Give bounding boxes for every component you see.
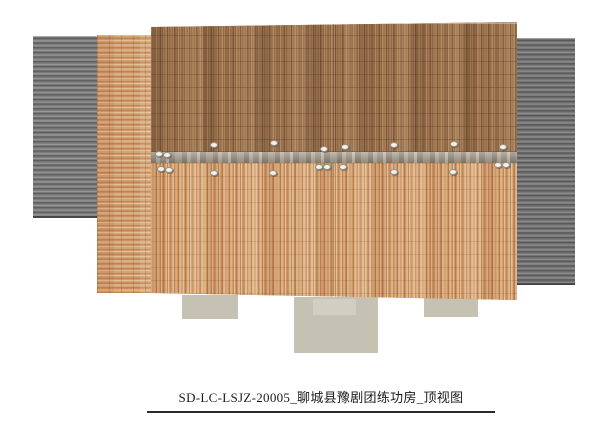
ridge-clip-dot (502, 162, 510, 168)
right-corrugated-roof (513, 38, 575, 285)
ridge-clip-dot (163, 152, 171, 158)
slab-center-inner (313, 299, 356, 315)
ridge-clip-dot (210, 142, 218, 148)
slab-left (182, 295, 238, 319)
drawing-sheet: SD-LC-LSJZ-20005_聊城县豫剧团练功房_顶视图 (0, 0, 608, 435)
ridge-clip-dot (323, 164, 331, 170)
ridge-clip-dot (390, 169, 398, 175)
ridge-clip-dot (341, 144, 349, 150)
ridge-clip-dot (315, 164, 323, 170)
ridge-clip-dot (390, 142, 398, 148)
ridge-clip-dot (157, 166, 165, 172)
ridge-clip-dot (270, 140, 278, 146)
ridge-clip-dot (269, 170, 277, 176)
main-roof-upper-slope (151, 22, 517, 152)
left-tile-roof-strip (97, 35, 151, 293)
roof-ridge-flashing (151, 152, 517, 163)
drawing-caption: SD-LC-LSJZ-20005_聊城县豫剧团练功房_顶视图 (147, 390, 495, 413)
ridge-clip-dot (499, 144, 507, 150)
ridge-clip-dot (210, 170, 218, 176)
roof-panel-seam (333, 163, 334, 296)
ridge-clip-dot (320, 146, 328, 152)
ridge-clip-dot (339, 164, 347, 170)
ridge-clip-dot (450, 141, 458, 147)
ridge-clip-dot (165, 167, 173, 173)
left-corrugated-roof (33, 36, 97, 218)
main-roof-lower-slope (151, 163, 517, 300)
roof-panel-seam (333, 24, 334, 152)
slab-right (424, 297, 478, 317)
ridge-clip-dot (155, 151, 163, 157)
ridge-clip-dot (494, 162, 502, 168)
ridge-clip-dot (449, 169, 457, 175)
